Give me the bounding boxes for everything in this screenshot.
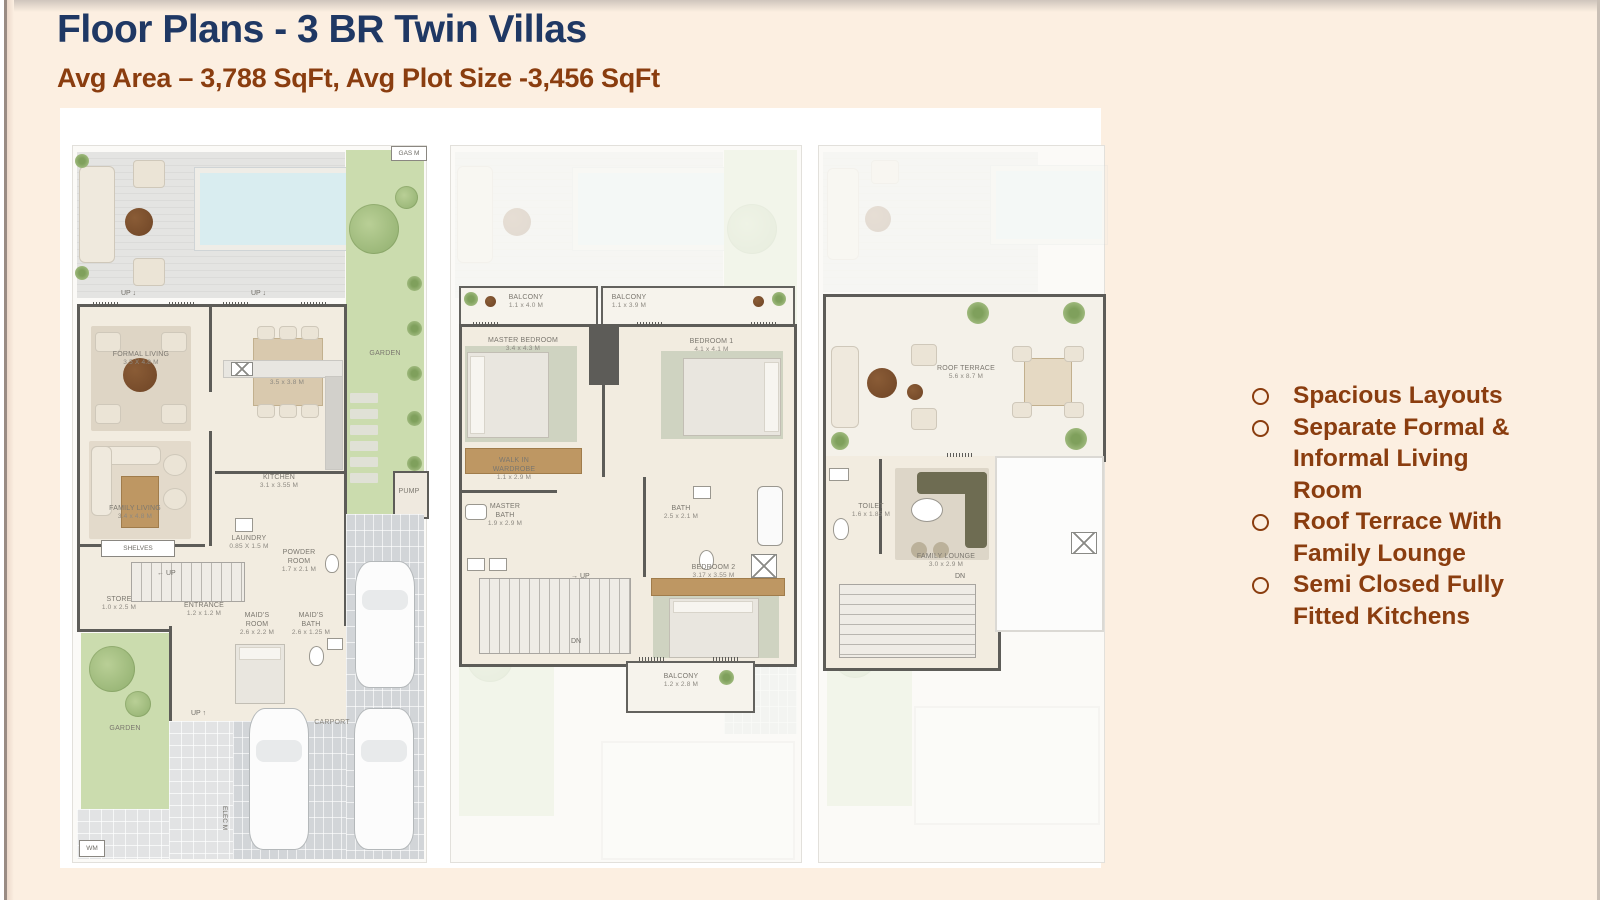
terrace-chair [911,408,937,430]
stepping-stone [350,441,378,451]
tree-icon [349,204,399,254]
tree-icon [125,691,151,717]
bedroom1-label: BEDROOM 14.1 x 4.1 M [674,337,749,355]
terrace-side-table [907,384,923,400]
window-symbol [473,322,499,326]
floor-plan-ground: GARDEN GAS M UP ↓ UP ↓ [72,145,427,863]
armchair [161,332,187,352]
interior-wall [643,477,646,577]
feature-item: Separate Formal & Informal Living Room [1252,412,1532,507]
kitchen-counter [325,376,343,470]
bath-sink [465,504,487,520]
stairs-up-label: → UP [571,573,590,580]
circle-bullet-icon [1252,420,1269,437]
tree-icon [395,186,418,209]
plant-icon [464,292,478,306]
swimming-pool [195,168,353,250]
toilet-fixture [325,554,339,573]
car-icon [355,561,415,688]
garden-rear-label: GARDEN [100,724,150,733]
window-symbol [223,302,249,306]
floor-plan-first: BALCONY1.1 x 4.0 M BALCONY1.1 x 3.9 M MA… [450,145,802,863]
window-symbol [713,657,739,661]
feature-text: Spacious Layouts [1293,380,1531,412]
bedroom2-closet [651,578,785,596]
feature-text: Semi Closed Fully Fitted Kitchens [1293,569,1531,632]
interior-wall [602,385,605,477]
powder-room-label: POWDER ROOM1.7 x 2.1 M [277,548,321,575]
plant-icon [772,292,786,306]
circle-bullet-icon [1252,388,1269,405]
master-bedroom-label: MASTER BEDROOM3.4 x 4.3 M [478,336,568,354]
balcony-left-label: BALCONY1.1 x 4.0 M [494,293,558,311]
window-symbol [93,302,119,306]
plant-icon [967,302,989,324]
car-icon [249,708,309,850]
washing-machine-label: WM [79,840,105,857]
slide: Floor Plans - 3 BR Twin Villas Avg Area … [0,0,1600,900]
store-label: STORE1.0 x 2.5 M [87,595,151,613]
slide-left-edge [0,0,14,900]
lounge-table [911,498,943,522]
staircase [839,584,976,658]
terrace-chair [911,344,937,366]
outdoor-chair [133,258,165,286]
armchair [95,332,121,352]
family-lounge-label: FAMILY LOUNGE3.0 x 2.9 M [901,552,991,570]
interior-wall [209,307,212,392]
stepping-stone [350,393,378,403]
laundry-label: LAUNDRY0.85 X 1.5 M [221,534,277,552]
gas-meter-label: GAS M [391,146,427,161]
window-symbol [637,322,663,326]
plant-icon [407,366,422,381]
toilet-fixture [833,518,849,540]
plant-icon [407,456,422,471]
feature-item: Semi Closed Fully Fitted Kitchens [1252,569,1532,632]
floor-plan-roof: ROOF TERRACE5.6 x 8.7 M TOILET1.6 x 1.85… [818,145,1105,863]
stepping-stone [350,473,378,483]
bed-pillow [764,362,779,432]
window-symbol [947,453,973,457]
bath-label: BATH2.5 x 2.1 M [651,504,711,522]
feature-item: Roof Terrace With Family Lounge [1252,506,1532,569]
balcony-right-label: BALCONY1.1 x 3.9 M [597,293,661,311]
shelves-label: SHELVES [101,540,175,557]
circle-bullet-icon [1252,577,1269,594]
pump-label: PUMP [395,487,423,496]
plant-icon [1063,302,1085,324]
terrace-chair [1012,346,1032,362]
terrace-chair [1064,402,1084,418]
page-title: Floor Plans - 3 BR Twin Villas [57,8,587,52]
tree-icon [89,646,135,692]
stepping-stone [350,425,378,435]
bed-pillow [239,647,281,660]
terrace-dining-table [1024,358,1072,406]
garden-side-label: GARDEN [360,349,410,358]
window-symbol [169,302,195,306]
dining-chair [257,326,275,340]
feature-text: Roof Terrace With Family Lounge [1293,506,1531,569]
lounge-sofa [965,472,987,548]
dining-chair [301,326,319,340]
kitchen-label: KITCHEN3.1 x 3.55 M [234,473,324,491]
stairs-up-label: ← UP [157,570,176,577]
bedroom2-label: BEDROOM 23.17 x 3.55 M [671,563,756,581]
plant-icon [407,321,422,336]
plant-icon [1065,428,1087,450]
plant-icon [75,154,89,168]
bathtub [757,486,783,546]
plant-icon [719,670,734,685]
family-living-label: FAMILY LIVING3.4 x 4.8 M [90,504,180,522]
round-chair [163,454,187,476]
up-arrow-label: UP ↓ [251,290,266,297]
plant-icon [831,432,849,450]
up-arrow-label: UP ↓ [121,290,136,297]
terrace-chair [1064,346,1084,362]
toilet-label: TOILET1.6 x 1.85 M [849,502,893,520]
up-path-label: UP ↑ [191,710,206,717]
plant-icon [75,266,89,280]
staircase [479,578,631,654]
terrace-sofa [831,346,859,428]
armchair [161,404,187,424]
toilet-fixture [309,646,324,666]
laundry-sink [235,518,253,532]
master-bath-label: MASTER BATH1.9 x 2.9 M [485,502,525,529]
feature-item: Spacious Layouts [1252,380,1532,412]
balcony-table [753,296,764,307]
carport-label: CARPORT [302,718,362,727]
interior-wall [589,327,619,385]
bath-sink [467,558,485,571]
window-symbol [751,322,777,326]
feature-text: Separate Formal & Informal Living Room [1293,412,1531,507]
window-symbol [639,657,665,661]
plant-icon [407,411,422,426]
outdoor-table [125,208,153,236]
elec-meter-label: ELEC M [221,806,228,830]
armchair [95,404,121,424]
window-symbol [301,302,327,306]
outdoor-chair [133,160,165,188]
dining-chair [257,404,275,418]
entrance-label: ENTRANCE1.2 x 1.2 M [174,601,234,619]
formal-living-label: FORMAL LIVING3.5 X 4.8 M [96,350,186,368]
page-subtitle: Avg Area – 3,788 SqFt, Avg Plot Size -3,… [57,63,660,94]
terrace-chair [1012,402,1032,418]
stairs-dn-label: DN [571,638,581,645]
bath-sink [829,468,849,481]
bed-pillow [470,356,485,434]
walk-in-wardrobe-label: WALK IN WARDROBE1.1 x 2.9 M [489,456,539,483]
bath-sink [489,558,507,571]
dining-chair [279,326,297,340]
plant-icon [407,276,422,291]
outdoor-sofa [79,166,115,263]
stepping-stone [350,457,378,467]
interior-wall [462,490,557,493]
bed-pillow [673,601,753,613]
kitchen-sink [231,362,253,376]
dining-chair [279,404,297,418]
maids-room-label: MAID'S ROOM2.6 x 2.2 M [235,611,279,638]
bath-sink [327,638,343,650]
features-list: Spacious Layouts Separate Formal & Infor… [1252,380,1552,632]
balcony-rear-label: BALCONY1.2 x 2.8 M [649,672,713,690]
floorplans-panel: GARDEN GAS M UP ↓ UP ↓ [60,108,1101,868]
dining-chair [301,404,319,418]
stepping-stone [350,409,378,419]
shaft-symbol [1071,532,1097,554]
stairs-dn-label: DN [955,573,965,580]
car-icon [354,708,414,850]
walkway-pavement [169,721,233,859]
bath-sink [693,486,711,499]
terrace-table [867,368,897,398]
circle-bullet-icon [1252,514,1269,531]
maids-bath-label: MAID'S BATH2.6 x 1.25 M [289,611,333,638]
roof-terrace-label: ROOF TERRACE5.6 x 8.7 M [921,364,1011,382]
interior-wall [209,431,212,546]
